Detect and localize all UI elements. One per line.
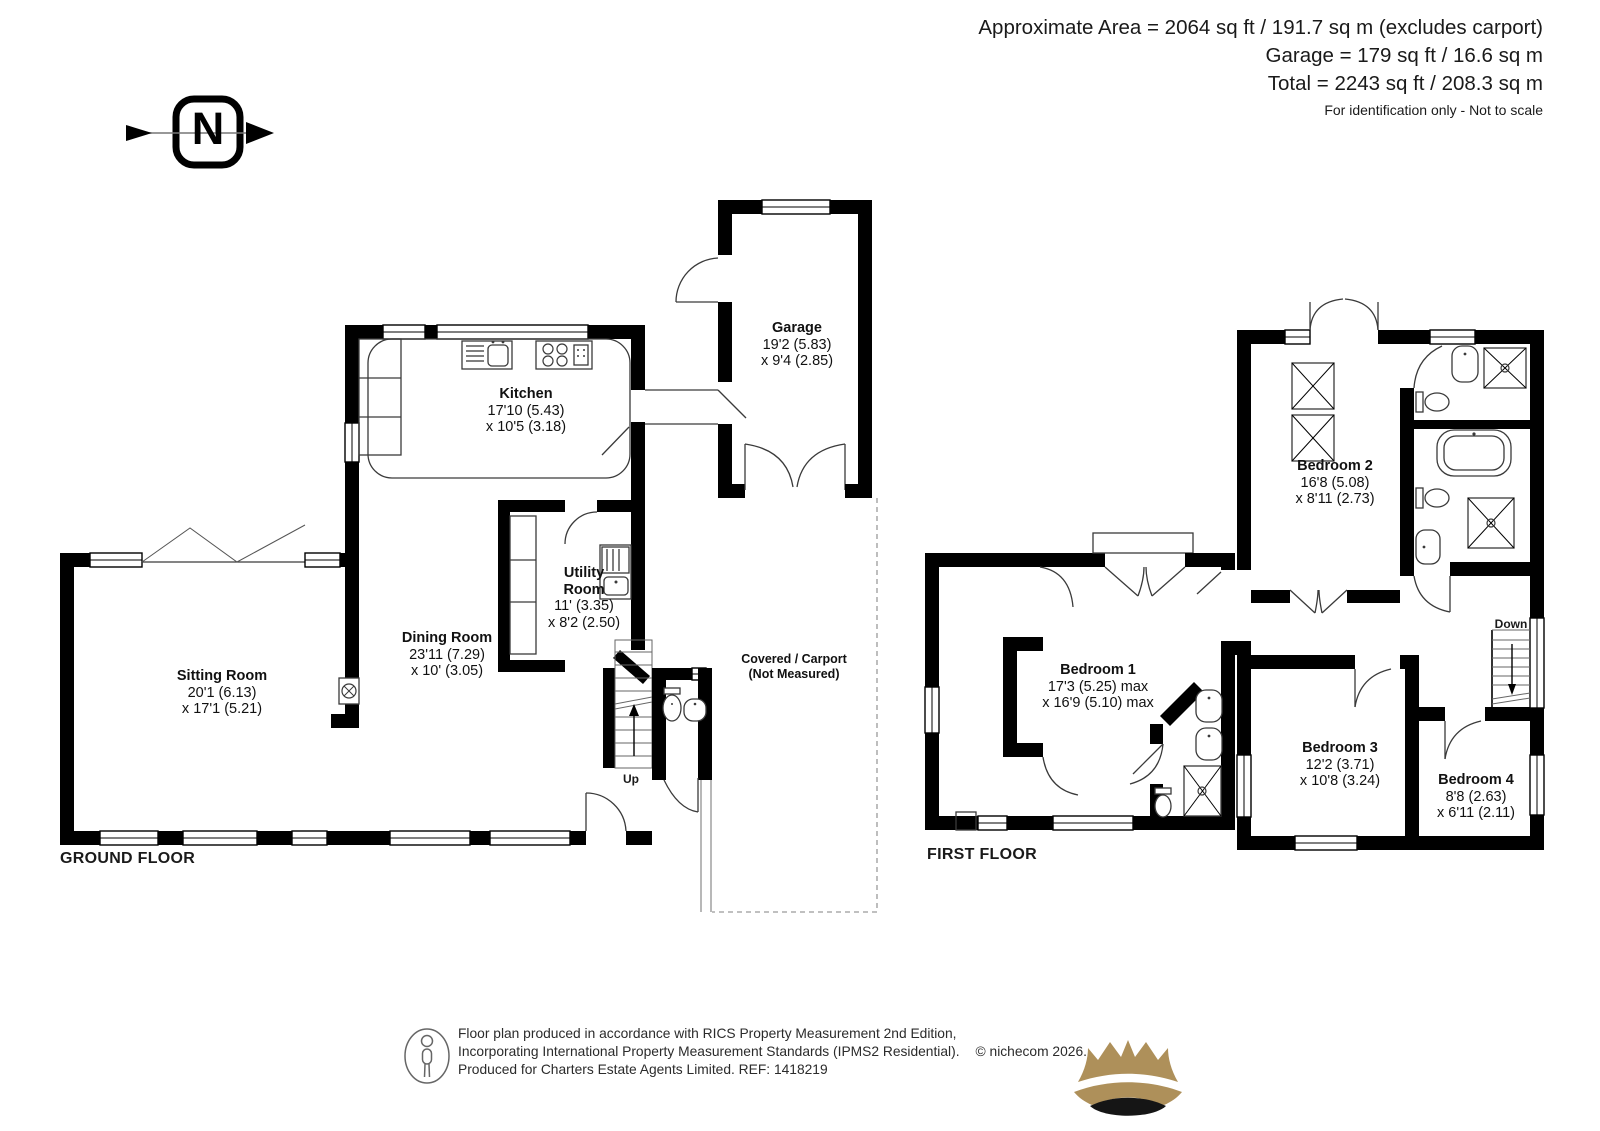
wc-room	[652, 668, 712, 812]
hob-icon	[536, 341, 592, 369]
stairs-down-icon	[1492, 630, 1530, 707]
room-label-bedroom-1: Bedroom 1 17'3 (5.25) max x 16'9 (5.10) …	[1042, 662, 1154, 712]
toilet-icon	[663, 688, 681, 721]
floorplan-page: Approximate Area = 2064 sq ft / 191.7 sq…	[0, 0, 1600, 1131]
bath-icon	[1437, 430, 1511, 476]
shower-icon	[1484, 348, 1526, 388]
crown-logo-icon	[1074, 1040, 1182, 1116]
room-label-bedroom-3: Bedroom 3 12'2 (3.71) x 10'8 (3.24)	[1300, 740, 1380, 790]
ground-floor-plan	[60, 200, 877, 912]
compass-letter: N	[192, 103, 225, 155]
basin-icon	[1196, 690, 1222, 722]
basin-icon	[1416, 530, 1440, 564]
wall-light-icon	[339, 678, 359, 704]
basin-icon	[1452, 346, 1478, 382]
room-label-kitchen: Kitchen 17'10 (5.43) x 10'5 (3.18)	[486, 386, 566, 436]
footer-disclaimer: Floor plan produced in accordance with R…	[458, 1025, 1087, 1079]
room-label-dining-room: Dining Room 23'11 (7.29) x 10' (3.05)	[402, 630, 492, 680]
area-summary: Approximate Area = 2064 sq ft / 191.7 sq…	[978, 14, 1543, 118]
garage-area-line: Garage = 179 sq ft / 16.6 sq m	[978, 42, 1543, 70]
stairs-up-label: Up	[623, 772, 639, 786]
ground-floor-title: GROUND FLOOR	[60, 850, 195, 868]
total-area-line: Total = 2243 sq ft / 208.3 sq m	[978, 70, 1543, 98]
stairs-down-label: Down	[1495, 617, 1528, 631]
copyright-text: © nichecom 2026.	[976, 1044, 1087, 1059]
toilet-icon	[1416, 488, 1449, 508]
scale-note: For identification only - Not to scale	[978, 102, 1543, 118]
wardrobe-icon	[1292, 415, 1334, 461]
floorplan-drawing	[0, 0, 1600, 1131]
first-floor-plan	[925, 299, 1544, 850]
room-label-carport: Covered / Carport (Not Measured)	[741, 652, 847, 682]
bathroom	[1416, 430, 1514, 564]
room-label-bedroom-2: Bedroom 2 16'8 (5.08) x 8'11 (2.73)	[1295, 458, 1374, 508]
sink-icon	[462, 341, 512, 369]
approximate-area-line: Approximate Area = 2064 sq ft / 191.7 sq…	[978, 14, 1543, 42]
basin-icon	[684, 699, 706, 721]
shower-icon	[1184, 766, 1221, 816]
ensuite-2	[1416, 346, 1526, 412]
footer-line-3: Produced for Charters Estate Agents Limi…	[458, 1061, 1087, 1079]
person-icon	[405, 1029, 449, 1083]
toilet-icon	[1155, 788, 1171, 817]
first-floor-title: FIRST FLOOR	[927, 846, 1037, 864]
footer-line-1: Floor plan produced in accordance with R…	[458, 1025, 1087, 1043]
toilet-icon	[1416, 392, 1449, 412]
room-label-sitting-room: Sitting Room 20'1 (6.13) x 17'1 (5.21)	[177, 668, 267, 718]
basin-icon	[1196, 728, 1222, 760]
wardrobe-icon	[1292, 363, 1334, 409]
footer-line-2: Incorporating International Property Mea…	[458, 1043, 1087, 1061]
room-label-utility-room: Utility Room 11' (3.35) x 8'2 (2.50)	[548, 565, 620, 631]
shower-icon	[1468, 498, 1514, 548]
room-label-bedroom-4: Bedroom 4 8'8 (2.63) x 6'11 (2.11)	[1437, 772, 1515, 822]
carport-outline	[701, 498, 877, 912]
room-label-garage: Garage 19'2 (5.83) x 9'4 (2.85)	[761, 320, 833, 370]
